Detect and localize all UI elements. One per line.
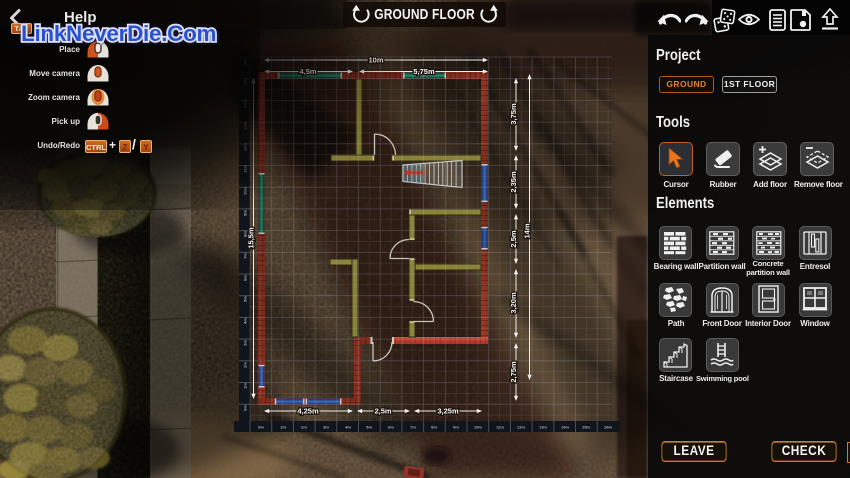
svg-text:1m: 1m [243,383,248,389]
svg-text:5,75m: 5,75m [413,67,435,76]
svg-text:12m: 12m [517,425,525,430]
svg-text:3,20m: 3,20m [509,292,518,314]
svg-text:10m: 10m [474,425,482,430]
svg-text:4m: 4m [243,318,248,324]
svg-text:2m: 2m [301,425,307,430]
svg-text:16m: 16m [604,425,612,430]
svg-text:2m: 2m [243,362,248,368]
svg-text:1m: 1m [280,425,286,430]
svg-text:4,25m: 4,25m [297,407,319,416]
svg-text:2,35m: 2,35m [509,171,518,193]
svg-text:3,75m: 3,75m [509,103,518,125]
svg-text:9m: 9m [453,425,459,430]
svg-text:6m: 6m [388,425,394,430]
svg-text:15,5m: 15,5m [247,227,256,249]
svg-text:14m: 14m [561,425,569,430]
svg-text:8m: 8m [431,425,437,430]
svg-text:7m: 7m [243,253,248,259]
svg-text:0m: 0m [258,425,264,430]
svg-text:13m: 13m [539,425,547,430]
svg-text:5m: 5m [366,425,372,430]
svg-text:4m: 4m [345,425,351,430]
svg-text:2,75m: 2,75m [509,361,518,383]
svg-text:11m: 11m [496,425,504,430]
svg-text:15m: 15m [582,425,590,430]
svg-text:5m: 5m [243,296,248,302]
svg-text:6m: 6m [243,275,248,281]
svg-text:2,5m: 2,5m [509,230,518,247]
svg-text:3,25m: 3,25m [437,407,459,416]
svg-text:2,5m: 2,5m [374,407,391,416]
svg-text:3m: 3m [323,425,329,430]
svg-text:0m: 0m [243,405,248,411]
svg-text:3m: 3m [243,340,248,346]
svg-text:14m: 14m [523,223,532,238]
svg-text:7m: 7m [410,425,416,430]
